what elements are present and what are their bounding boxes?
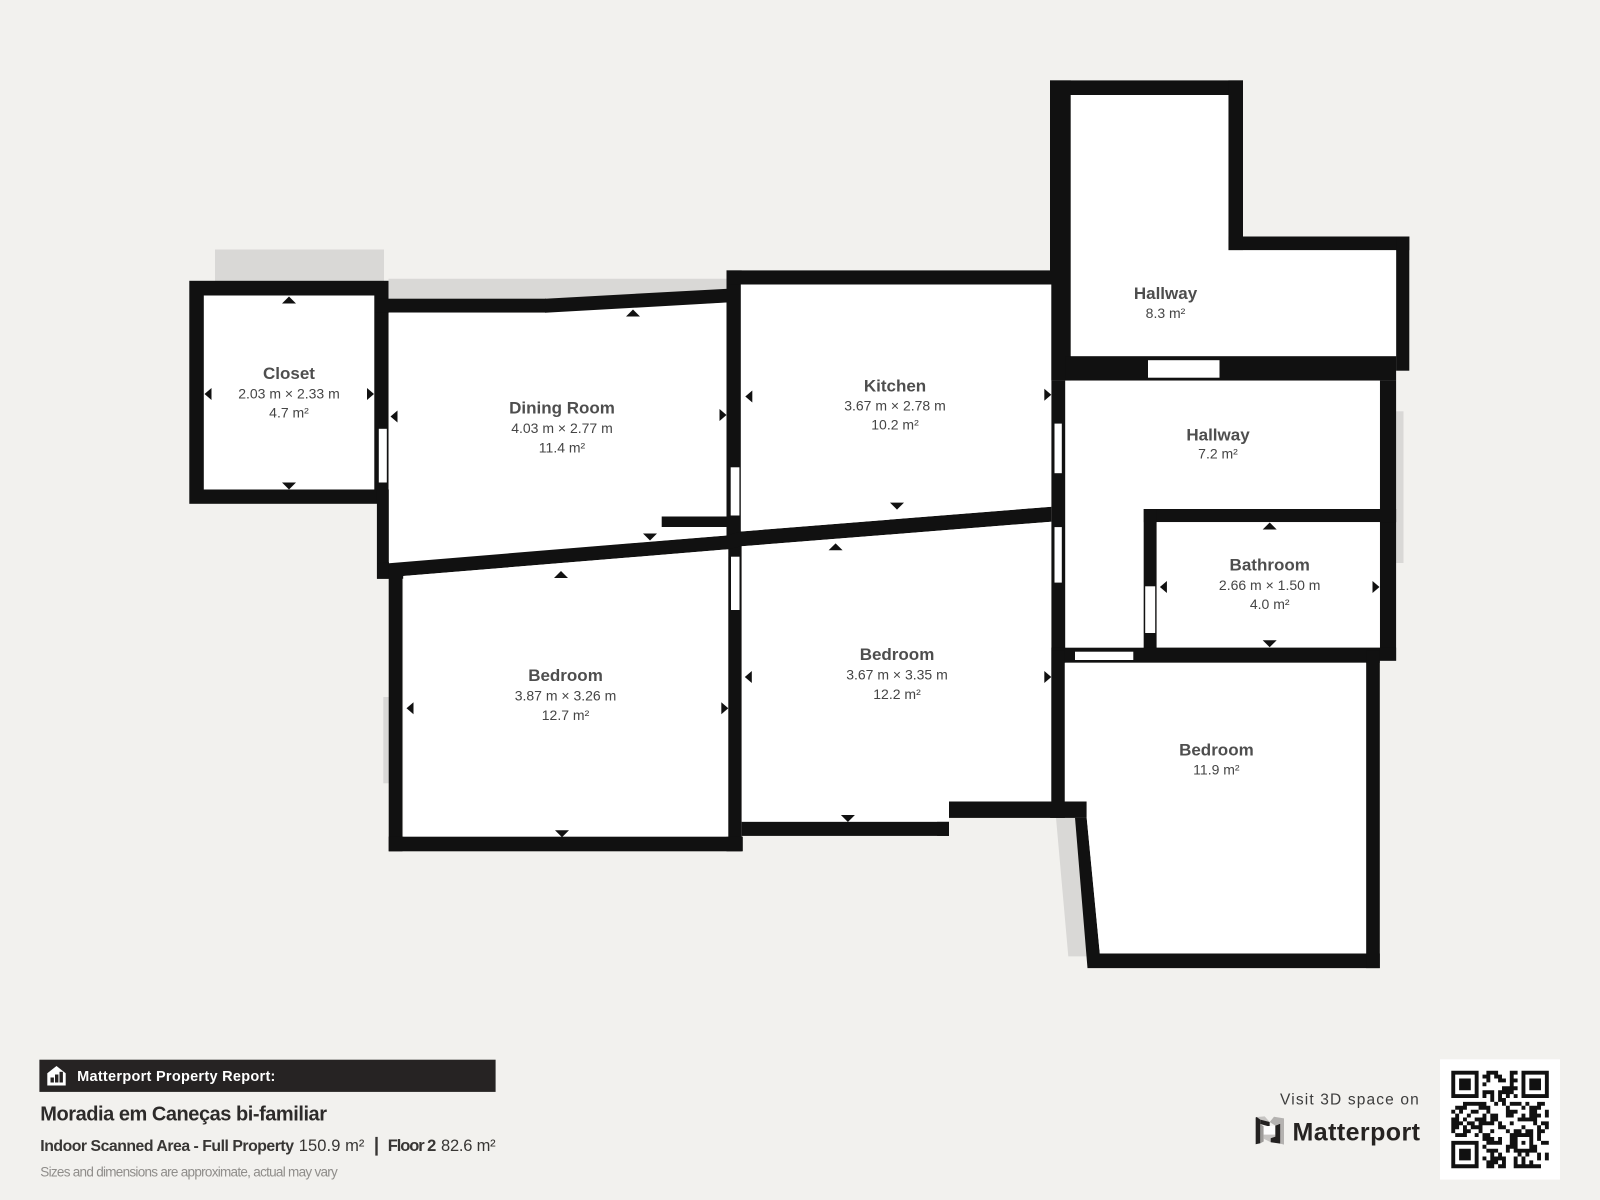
svg-text:Hallway: Hallway bbox=[1134, 284, 1198, 303]
svg-text:8.3 m²: 8.3 m² bbox=[1146, 305, 1186, 321]
svg-text:12.7 m²: 12.7 m² bbox=[542, 707, 590, 723]
svg-text:11.4 m²: 11.4 m² bbox=[539, 440, 586, 456]
svg-text:Matterport Property Report:: Matterport Property Report: bbox=[77, 1069, 275, 1085]
svg-text:3.87 m × 3.26 m: 3.87 m × 3.26 m bbox=[515, 688, 617, 704]
svg-text:10.2 m²: 10.2 m² bbox=[871, 417, 919, 433]
svg-text:3.67 m × 2.78 m: 3.67 m × 2.78 m bbox=[844, 398, 946, 414]
svg-text:Sizes and dimensions are appro: Sizes and dimensions are approximate, ac… bbox=[40, 1165, 338, 1180]
svg-text:Visit 3D space on: Visit 3D space on bbox=[1280, 1092, 1419, 1109]
svg-text:Dining Room: Dining Room bbox=[509, 399, 615, 418]
svg-text:3.67 m × 3.35 m: 3.67 m × 3.35 m bbox=[846, 667, 948, 683]
svg-text:12.2 m²: 12.2 m² bbox=[873, 686, 921, 702]
svg-text:Matterport: Matterport bbox=[1293, 1119, 1421, 1147]
svg-text:82.6 m²: 82.6 m² bbox=[441, 1137, 496, 1155]
svg-text:150.9 m²: 150.9 m² bbox=[299, 1137, 365, 1155]
svg-text:Hallway: Hallway bbox=[1186, 425, 1250, 444]
svg-text:Closet: Closet bbox=[263, 364, 315, 383]
svg-text:4.03 m × 2.77 m: 4.03 m × 2.77 m bbox=[511, 420, 613, 436]
svg-text:Floor 2: Floor 2 bbox=[388, 1137, 437, 1155]
svg-text:2.03 m × 2.33 m: 2.03 m × 2.33 m bbox=[238, 385, 340, 401]
svg-text:4.7 m²: 4.7 m² bbox=[269, 405, 309, 421]
svg-text:Moradia em Caneças bi-familiar: Moradia em Caneças bi-familiar bbox=[40, 1104, 327, 1126]
svg-text:4.0 m²: 4.0 m² bbox=[1250, 596, 1290, 612]
svg-text:Bedroom: Bedroom bbox=[528, 666, 603, 685]
svg-text:Kitchen: Kitchen bbox=[864, 377, 926, 396]
svg-text:Indoor Scanned Area - Full Pro: Indoor Scanned Area - Full Property bbox=[40, 1138, 294, 1155]
svg-text:Bedroom: Bedroom bbox=[1179, 740, 1254, 759]
svg-text:Bathroom: Bathroom bbox=[1230, 555, 1310, 574]
svg-text:7.2 m²: 7.2 m² bbox=[1198, 446, 1238, 462]
svg-text:Bedroom: Bedroom bbox=[860, 645, 935, 664]
svg-text:2.66 m × 1.50 m: 2.66 m × 1.50 m bbox=[1219, 577, 1321, 593]
svg-text:11.9 m²: 11.9 m² bbox=[1193, 762, 1240, 778]
